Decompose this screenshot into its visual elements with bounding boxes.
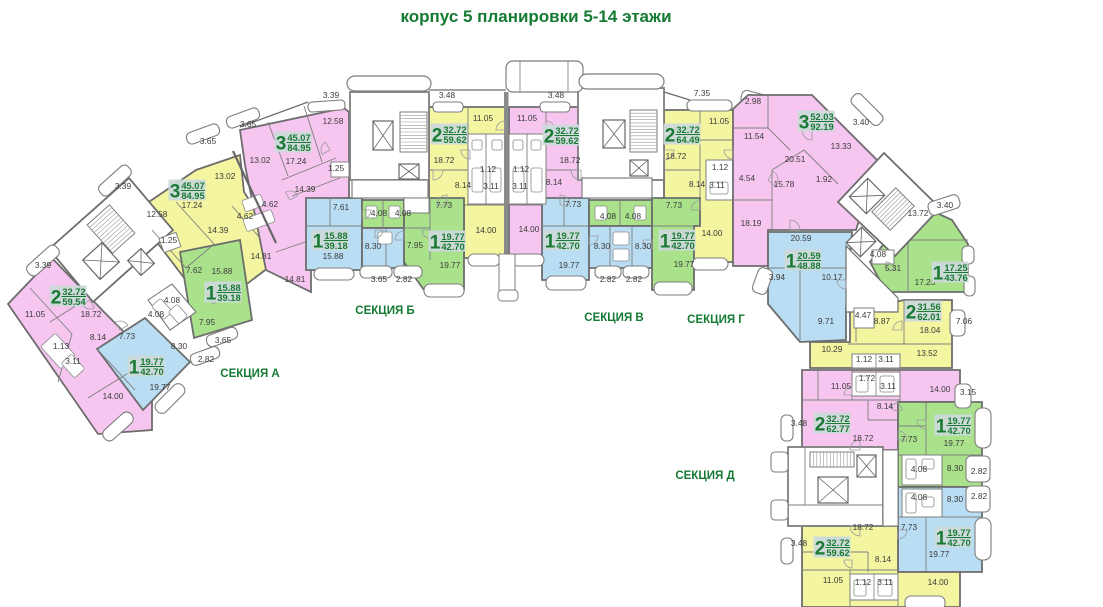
svg-text:13.72: 13.72: [908, 208, 929, 218]
svg-text:19.77: 19.77: [674, 259, 695, 269]
svg-text:2.82: 2.82: [971, 466, 988, 476]
svg-text:14.00: 14.00: [519, 224, 540, 234]
svg-text:4.08: 4.08: [164, 295, 181, 305]
svg-text:7.61: 7.61: [333, 202, 350, 212]
svg-text:8.14: 8.14: [90, 332, 107, 342]
svg-text:2.82: 2.82: [971, 491, 988, 501]
svg-text:52.03: 52.03: [810, 112, 833, 122]
svg-text:8.87: 8.87: [874, 316, 891, 326]
svg-text:84.95: 84.95: [287, 143, 310, 153]
svg-text:СЕКЦИЯ Г: СЕКЦИЯ Г: [687, 314, 745, 326]
svg-text:8.30: 8.30: [947, 463, 964, 473]
svg-text:7.62: 7.62: [186, 265, 203, 275]
svg-text:1: 1: [313, 232, 324, 253]
svg-text:4.08: 4.08: [911, 464, 928, 474]
svg-text:32.72: 32.72: [555, 126, 578, 136]
svg-text:5.31: 5.31: [885, 263, 902, 273]
svg-text:3.11: 3.11: [512, 181, 528, 191]
svg-text:8.30: 8.30: [635, 241, 652, 251]
svg-text:19.77: 19.77: [559, 260, 580, 270]
svg-text:3.11: 3.11: [878, 354, 894, 364]
svg-text:59.62: 59.62: [555, 136, 578, 146]
svg-text:14.00: 14.00: [103, 391, 124, 401]
svg-text:4.08: 4.08: [870, 249, 887, 259]
svg-text:3: 3: [799, 113, 810, 134]
svg-text:11.54: 11.54: [744, 131, 765, 141]
svg-text:1.12: 1.12: [855, 577, 872, 587]
svg-text:3.15: 3.15: [960, 387, 977, 397]
svg-text:19.77: 19.77: [150, 382, 171, 392]
svg-text:17.24: 17.24: [182, 200, 203, 210]
svg-text:3.11: 3.11: [483, 181, 499, 191]
svg-text:4.62: 4.62: [262, 199, 279, 209]
svg-text:12.58: 12.58: [323, 116, 344, 126]
svg-text:18.19: 18.19: [741, 218, 762, 228]
svg-text:4.08: 4.08: [600, 211, 617, 221]
svg-text:3.48: 3.48: [548, 90, 565, 100]
svg-text:11.05: 11.05: [25, 309, 46, 319]
svg-text:43.76: 43.76: [944, 273, 967, 283]
svg-text:15.88: 15.88: [324, 231, 347, 241]
svg-text:3.39: 3.39: [35, 260, 52, 270]
svg-text:7.95: 7.95: [407, 240, 424, 250]
svg-text:39.18: 39.18: [217, 293, 240, 303]
svg-text:14.00: 14.00: [930, 384, 951, 394]
svg-text:8.14: 8.14: [455, 180, 472, 190]
svg-text:1.92: 1.92: [816, 174, 833, 184]
svg-text:3.94: 3.94: [769, 272, 786, 282]
svg-text:19.77: 19.77: [944, 438, 965, 448]
svg-text:11.05: 11.05: [709, 116, 730, 126]
svg-text:4.54: 4.54: [739, 173, 756, 183]
svg-text:19.77: 19.77: [441, 232, 464, 242]
svg-text:92.19: 92.19: [810, 122, 833, 132]
svg-text:18.72: 18.72: [560, 155, 581, 165]
svg-text:20.51: 20.51: [785, 154, 806, 164]
svg-text:13.02: 13.02: [250, 155, 271, 165]
svg-text:45.07: 45.07: [181, 181, 204, 191]
svg-text:8.14: 8.14: [546, 177, 563, 187]
svg-text:3.65: 3.65: [215, 335, 232, 345]
svg-text:59.62: 59.62: [443, 135, 466, 145]
svg-text:8.14: 8.14: [689, 179, 706, 189]
svg-text:18.72: 18.72: [434, 155, 455, 165]
svg-text:14.81: 14.81: [285, 274, 306, 284]
svg-text:18.72: 18.72: [853, 522, 874, 532]
svg-text:32.72: 32.72: [62, 287, 85, 297]
svg-text:1: 1: [933, 264, 944, 285]
svg-text:7.73: 7.73: [666, 200, 683, 210]
svg-text:48.88: 48.88: [797, 261, 820, 271]
svg-text:32.72: 32.72: [826, 538, 849, 548]
svg-text:1.12: 1.12: [480, 164, 497, 174]
svg-text:1: 1: [936, 529, 947, 550]
svg-text:42.70: 42.70: [441, 242, 464, 252]
svg-text:62.77: 62.77: [826, 424, 849, 434]
svg-text:СЕКЦИЯ В: СЕКЦИЯ В: [584, 312, 643, 324]
svg-text:13.52: 13.52: [917, 348, 938, 358]
svg-text:19.77: 19.77: [947, 416, 970, 426]
svg-text:10.29: 10.29: [822, 344, 843, 354]
svg-text:1.12: 1.12: [513, 164, 530, 174]
svg-text:1.13: 1.13: [53, 341, 70, 351]
svg-text:14.81: 14.81: [251, 251, 272, 261]
svg-text:1.25: 1.25: [328, 163, 345, 173]
svg-text:3: 3: [276, 134, 287, 155]
svg-text:3.39: 3.39: [323, 90, 340, 100]
svg-text:2.82: 2.82: [396, 274, 413, 284]
svg-text:19.77: 19.77: [140, 357, 163, 367]
svg-text:2.98: 2.98: [745, 96, 762, 106]
svg-text:3.48: 3.48: [791, 538, 808, 548]
svg-text:32.72: 32.72: [826, 414, 849, 424]
svg-text:12.58: 12.58: [147, 209, 168, 219]
svg-text:3.11: 3.11: [880, 381, 896, 391]
svg-text:15.78: 15.78: [774, 179, 795, 189]
svg-text:14.00: 14.00: [476, 225, 497, 235]
svg-text:3: 3: [170, 182, 181, 203]
svg-text:2: 2: [432, 126, 443, 147]
svg-text:42.70: 42.70: [947, 538, 970, 548]
svg-text:20.59: 20.59: [797, 251, 820, 261]
svg-text:СЕКЦИЯ А: СЕКЦИЯ А: [220, 368, 279, 380]
svg-text:19.77: 19.77: [947, 528, 970, 538]
svg-text:11.05: 11.05: [473, 113, 494, 123]
svg-text:62.01: 62.01: [917, 312, 940, 322]
svg-text:8.14: 8.14: [875, 554, 892, 564]
svg-text:2: 2: [906, 303, 917, 324]
svg-text:4.08: 4.08: [911, 492, 928, 502]
svg-text:32.72: 32.72: [443, 125, 466, 135]
svg-text:13.02: 13.02: [215, 171, 236, 181]
svg-text:19.77: 19.77: [556, 231, 579, 241]
svg-text:42.70: 42.70: [947, 426, 970, 436]
svg-text:42.70: 42.70: [140, 367, 163, 377]
svg-text:7.73: 7.73: [119, 331, 136, 341]
svg-text:1.25: 1.25: [161, 235, 178, 245]
svg-text:1: 1: [129, 358, 140, 379]
svg-text:11.05: 11.05: [831, 381, 852, 391]
svg-text:1: 1: [936, 417, 947, 438]
svg-text:2: 2: [815, 415, 826, 436]
svg-text:15.88: 15.88: [212, 266, 233, 276]
svg-text:18.72: 18.72: [666, 151, 687, 161]
svg-text:17.24: 17.24: [286, 156, 307, 166]
svg-text:19.77: 19.77: [671, 231, 694, 241]
svg-text:1.12: 1.12: [856, 354, 873, 364]
svg-text:20.59: 20.59: [791, 233, 812, 243]
svg-text:31.56: 31.56: [917, 302, 940, 312]
svg-text:14.00: 14.00: [928, 577, 949, 587]
svg-text:1: 1: [430, 233, 441, 254]
svg-text:59.54: 59.54: [62, 297, 86, 307]
svg-text:11.05: 11.05: [823, 575, 844, 585]
svg-text:8.14: 8.14: [877, 401, 894, 411]
svg-text:3.11: 3.11: [65, 356, 81, 366]
svg-text:14.00: 14.00: [702, 228, 723, 238]
svg-text:45.07: 45.07: [287, 133, 310, 143]
svg-text:4.08: 4.08: [148, 309, 165, 319]
svg-text:3.48: 3.48: [791, 418, 808, 428]
svg-text:1.12: 1.12: [712, 162, 729, 172]
svg-text:1: 1: [786, 252, 797, 273]
svg-text:3.65: 3.65: [200, 136, 217, 146]
svg-text:14.39: 14.39: [208, 225, 229, 235]
svg-text:1: 1: [545, 232, 556, 253]
svg-text:3.40: 3.40: [853, 117, 870, 127]
svg-text:19.77: 19.77: [440, 260, 461, 270]
svg-text:3.39: 3.39: [115, 181, 132, 191]
svg-text:32.72: 32.72: [676, 125, 699, 135]
svg-text:8.30: 8.30: [594, 241, 611, 251]
svg-text:18.72: 18.72: [81, 309, 102, 319]
svg-text:10.17: 10.17: [822, 272, 843, 282]
svg-text:4.47: 4.47: [855, 310, 872, 320]
svg-text:8.30: 8.30: [947, 494, 964, 504]
svg-text:13.33: 13.33: [831, 141, 852, 151]
svg-text:корпус 5 планировки 5-14 этажи: корпус 5 планировки 5-14 этажи: [400, 7, 671, 26]
svg-text:84.95: 84.95: [181, 191, 204, 201]
svg-text:3.11: 3.11: [877, 577, 893, 587]
svg-text:17.25: 17.25: [944, 263, 967, 273]
svg-text:2.82: 2.82: [626, 274, 643, 284]
svg-text:64.49: 64.49: [676, 135, 699, 145]
svg-text:8.30: 8.30: [171, 341, 188, 351]
svg-text:7.73: 7.73: [436, 200, 453, 210]
svg-text:9.71: 9.71: [818, 316, 835, 326]
svg-text:1: 1: [206, 284, 217, 305]
svg-text:7.73: 7.73: [901, 522, 918, 532]
svg-text:39.18: 39.18: [324, 241, 347, 251]
svg-text:3.65: 3.65: [371, 274, 388, 284]
svg-text:3.65: 3.65: [240, 119, 257, 129]
svg-text:7.35: 7.35: [694, 88, 711, 98]
svg-text:4.08: 4.08: [395, 208, 412, 218]
svg-text:15.88: 15.88: [217, 283, 240, 293]
svg-text:3.40: 3.40: [937, 200, 954, 210]
svg-text:7.73: 7.73: [901, 434, 918, 444]
svg-text:2.82: 2.82: [600, 274, 617, 284]
svg-text:7.73: 7.73: [565, 199, 582, 209]
svg-text:18.04: 18.04: [920, 325, 941, 335]
svg-text:1: 1: [660, 232, 671, 253]
svg-text:42.70: 42.70: [671, 241, 694, 251]
svg-text:2: 2: [51, 288, 62, 309]
svg-text:11.05: 11.05: [517, 113, 538, 123]
svg-text:4.62: 4.62: [237, 211, 254, 221]
svg-text:2: 2: [815, 539, 826, 560]
svg-text:2: 2: [665, 126, 676, 147]
svg-text:СЕКЦИЯ Д: СЕКЦИЯ Д: [675, 470, 734, 482]
svg-text:3.48: 3.48: [439, 90, 456, 100]
svg-text:19.77: 19.77: [929, 549, 950, 559]
svg-text:14.39: 14.39: [295, 184, 316, 194]
svg-text:7.95: 7.95: [199, 317, 216, 327]
svg-text:18.72: 18.72: [853, 433, 874, 443]
svg-text:59.62: 59.62: [826, 548, 849, 558]
svg-text:2.82: 2.82: [198, 354, 215, 364]
svg-text:42.70: 42.70: [556, 241, 579, 251]
svg-text:15.88: 15.88: [323, 251, 344, 261]
svg-text:4.08: 4.08: [371, 208, 388, 218]
svg-text:СЕКЦИЯ Б: СЕКЦИЯ Б: [355, 305, 414, 317]
svg-text:4.08: 4.08: [625, 211, 642, 221]
svg-text:2: 2: [544, 127, 555, 148]
svg-text:1.72: 1.72: [859, 373, 876, 383]
svg-text:7.06: 7.06: [956, 316, 973, 326]
svg-text:8.30: 8.30: [365, 241, 382, 251]
svg-text:3.11: 3.11: [709, 180, 725, 190]
